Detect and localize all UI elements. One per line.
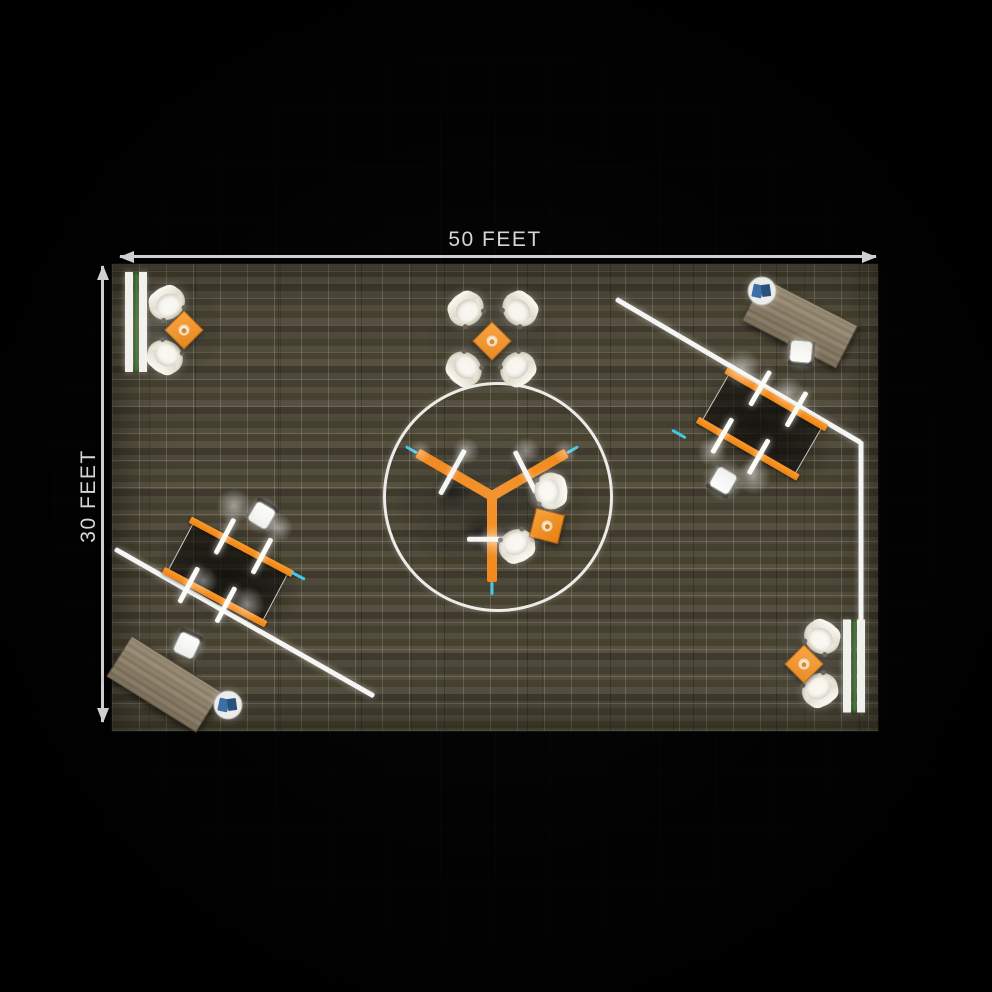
- arrow-left-icon: [119, 251, 134, 263]
- side-table: [214, 691, 243, 720]
- height-dimension-line: [101, 266, 104, 722]
- width-dimension-line: [120, 255, 876, 258]
- planter-strip: [134, 272, 138, 372]
- books: [227, 698, 238, 711]
- books: [761, 284, 772, 297]
- table-logo-dot: [800, 660, 807, 667]
- wall: [859, 441, 864, 622]
- table-logo-icon: [796, 656, 812, 672]
- table-logo-icon: [540, 519, 553, 532]
- side-table: [748, 277, 777, 306]
- chair-seat: [789, 339, 814, 364]
- arrow-down-icon: [97, 708, 109, 723]
- floorplan-scene: 50 FEET 30 FEET: [0, 0, 992, 992]
- bench-seat: [843, 620, 851, 713]
- chair-armrest: [497, 537, 504, 544]
- width-dimension-label: 50 FEET: [112, 228, 878, 252]
- arrow-right-icon: [862, 251, 877, 263]
- table-logo-icon: [484, 333, 500, 349]
- table-logo-dot: [180, 326, 187, 333]
- table-logo-dot: [544, 523, 550, 529]
- office-chair: [786, 337, 815, 367]
- chair-armrest: [534, 477, 539, 482]
- planter-strip: [852, 620, 856, 713]
- table-logo-dot: [488, 337, 495, 344]
- cyan-marker: [491, 582, 494, 595]
- bench-seat: [857, 620, 865, 713]
- bench-planter: [843, 620, 865, 713]
- arrow-up-icon: [97, 265, 109, 280]
- bench-seat: [125, 272, 133, 372]
- bench-planter: [125, 272, 147, 372]
- height-dimension-label: 30 FEET: [77, 441, 101, 551]
- chair-armrest: [536, 501, 541, 506]
- table-logo-icon: [176, 322, 192, 338]
